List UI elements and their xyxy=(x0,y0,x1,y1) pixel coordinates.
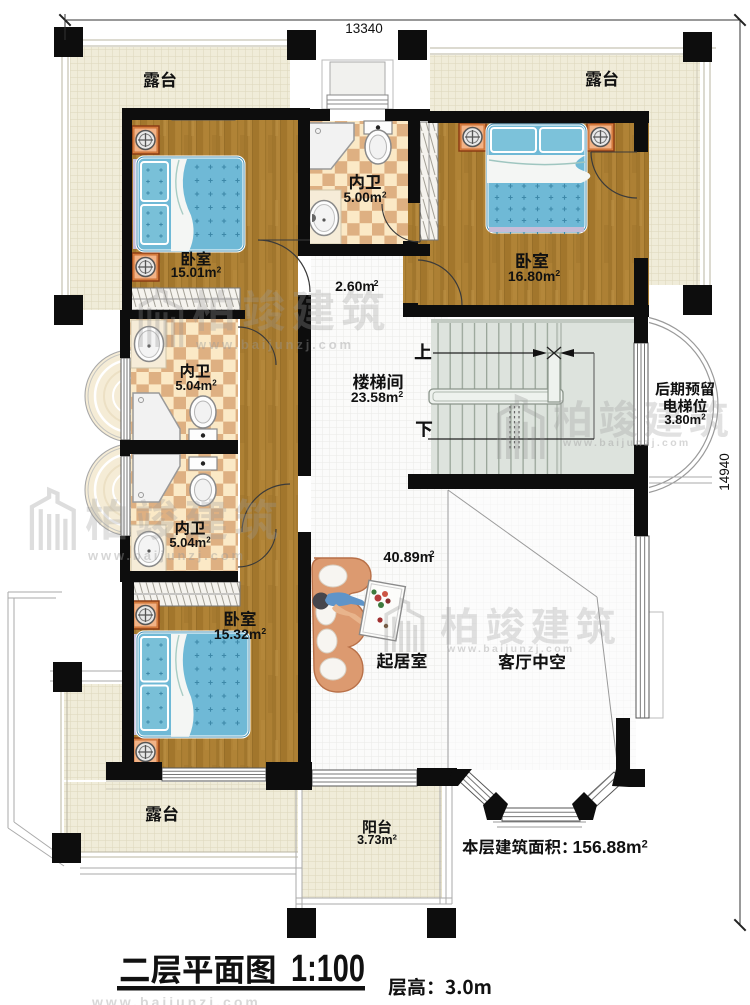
svg-text:156.88m2: 156.88m2 xyxy=(573,837,648,857)
svg-text:14940: 14940 xyxy=(717,453,732,491)
svg-text:www.baijunzj.com: www.baijunzj.com xyxy=(562,437,691,449)
svg-text:3.80m2: 3.80m2 xyxy=(664,412,706,427)
svg-text:5.04m2: 5.04m2 xyxy=(169,535,211,550)
svg-text:www.baijunzj.com: www.baijunzj.com xyxy=(446,643,575,655)
svg-text:www.baijunzj.com: www.baijunzj.com xyxy=(195,337,354,352)
svg-text:1:100: 1:100 xyxy=(291,948,365,990)
svg-text:www.baijunzj.com: www.baijunzj.com xyxy=(91,994,261,1005)
svg-text:2: 2 xyxy=(374,278,379,288)
svg-text:40.89m: 40.89m xyxy=(383,550,432,566)
svg-text:13340: 13340 xyxy=(345,21,383,36)
svg-text:2.60m: 2.60m xyxy=(335,278,375,294)
svg-text:15.01m2: 15.01m2 xyxy=(171,264,222,280)
svg-text:3.73m2: 3.73m2 xyxy=(357,833,397,847)
svg-text:2: 2 xyxy=(429,549,434,559)
svg-text:www.baijunzj.com: www.baijunzj.com xyxy=(87,548,246,563)
svg-text:5.00m2: 5.00m2 xyxy=(344,189,387,205)
svg-text:5.04m2: 5.04m2 xyxy=(175,378,217,393)
svg-text:23.58m2: 23.58m2 xyxy=(351,389,403,405)
svg-text:15.32m2: 15.32m2 xyxy=(214,626,266,642)
svg-text:16.80m2: 16.80m2 xyxy=(508,268,560,284)
